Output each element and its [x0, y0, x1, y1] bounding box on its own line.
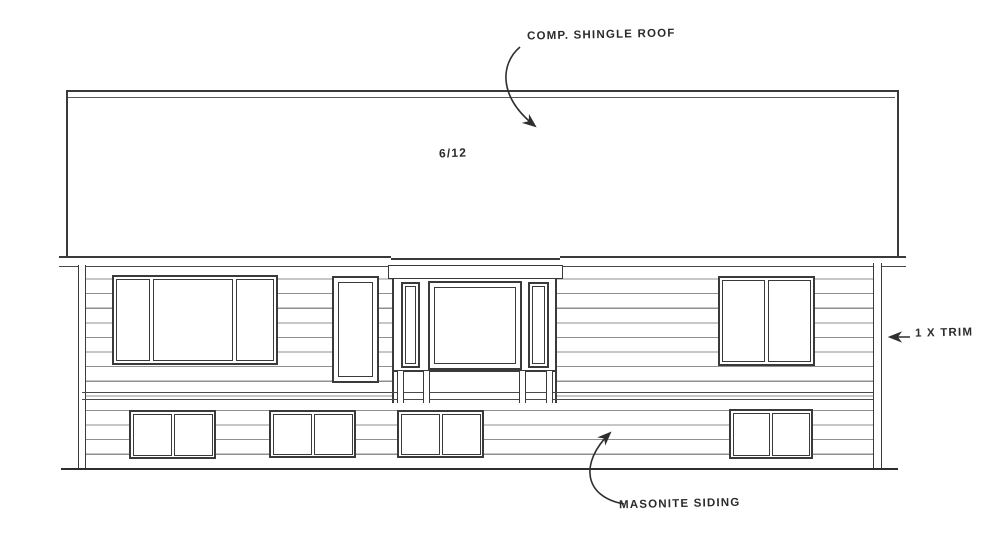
trim-label: 1 X TRIM — [915, 326, 973, 339]
basement-window-3-pane-right — [442, 414, 481, 455]
basement-window-1-pane-right — [174, 414, 213, 456]
basement-window-3 — [397, 410, 484, 458]
basement-window-1 — [129, 410, 216, 459]
corner-trim-left — [78, 265, 86, 470]
roof-ridge-line — [68, 97, 895, 98]
roof-material-label: COMP. SHINGLE ROOF — [527, 27, 676, 42]
bay-side-lite-left — [401, 282, 420, 368]
triple-window-pane-center — [153, 279, 233, 361]
bay-center-window — [428, 281, 522, 370]
basement-window-2 — [269, 410, 356, 458]
bay-side-lite-right — [528, 282, 549, 368]
tall-narrow-window — [332, 276, 379, 383]
bay-sill-line — [392, 370, 557, 372]
basement-window-2-pane-right — [314, 414, 353, 455]
floor-band-line — [82, 392, 873, 400]
triple-window-pane-left — [116, 279, 150, 361]
bay-post-4 — [546, 371, 553, 403]
basement-window-1-pane-left — [133, 414, 172, 456]
basement-window-2-pane-left — [273, 414, 312, 455]
basement-window-4-pane-left — [733, 413, 771, 456]
double-window-pane-left — [722, 280, 765, 362]
bay-post-1 — [397, 371, 404, 403]
tall-narrow-window-glass — [338, 282, 373, 377]
triple-window-left — [112, 275, 278, 365]
siding-label: MASONITE SIDING — [619, 497, 741, 512]
rear-elevation-drawing: COMP. SHINGLE ROOF 6/12 1 X TRIM MASONIT… — [0, 0, 1000, 533]
bay-side-lite-right-glass — [532, 286, 545, 364]
ground-line — [61, 468, 898, 470]
double-window-right — [718, 276, 815, 366]
basement-window-4-pane-right — [772, 413, 810, 456]
bay-window-header — [388, 265, 563, 279]
double-window-pane-right — [768, 280, 811, 362]
roof-plane — [66, 90, 899, 260]
roof-pitch-label: 6/12 — [439, 146, 468, 161]
corner-trim-right — [873, 263, 882, 470]
basement-window-3-pane-left — [401, 414, 440, 455]
triple-window-pane-right — [236, 279, 274, 361]
bay-center-window-glass — [434, 287, 516, 364]
bay-side-lite-left-glass — [405, 286, 416, 364]
bay-post-2 — [423, 371, 430, 403]
basement-window-4 — [729, 409, 813, 459]
bay-post-3 — [519, 371, 526, 403]
